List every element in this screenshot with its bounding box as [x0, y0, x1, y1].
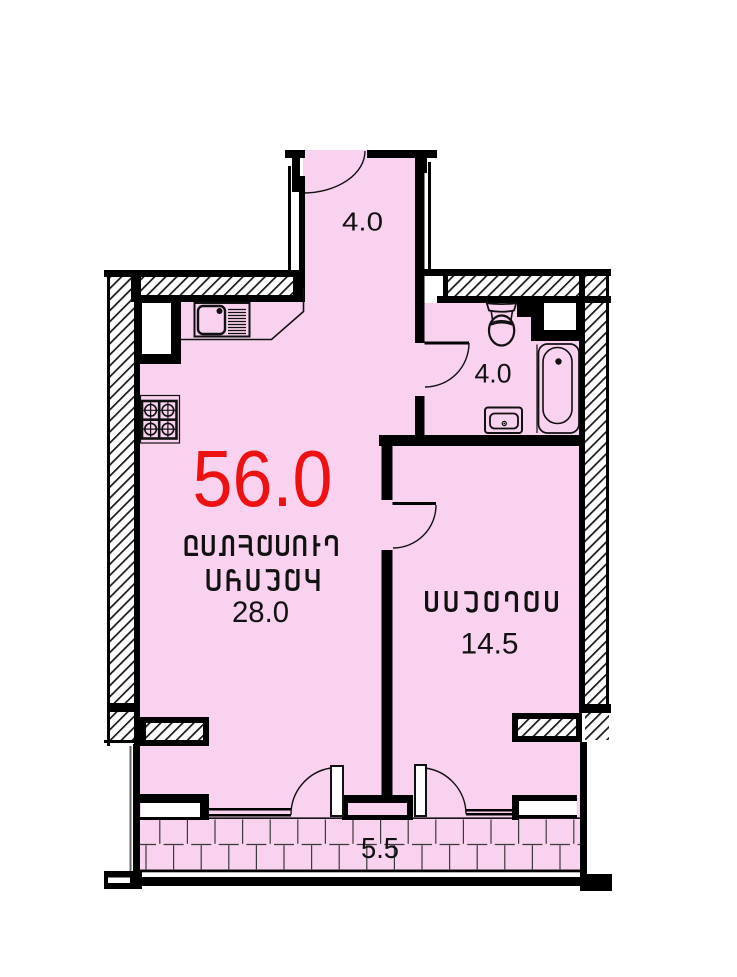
- svg-text:4.0: 4.0: [342, 207, 383, 237]
- svg-text:14.5: 14.5: [461, 628, 519, 661]
- svg-text:28.0: 28.0: [232, 596, 289, 629]
- svg-text:56.0: 56.0: [193, 434, 333, 523]
- svg-text:5.5: 5.5: [361, 833, 399, 865]
- svg-text:4.0: 4.0: [475, 359, 512, 389]
